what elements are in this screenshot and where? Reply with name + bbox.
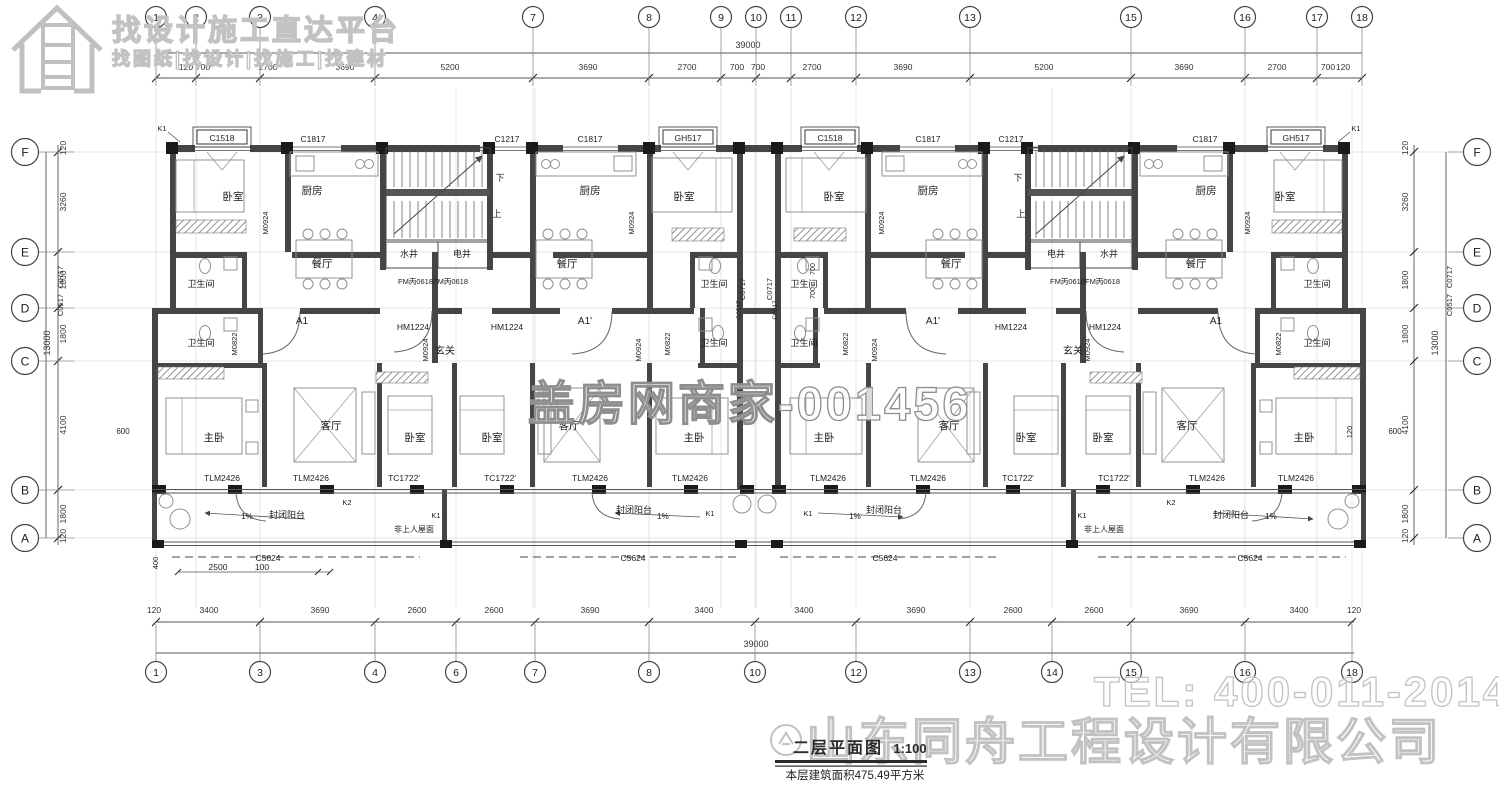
dim-label: 3260 (58, 192, 68, 211)
furniture (362, 392, 375, 454)
fixture-circle (959, 160, 968, 169)
tag-label: 600 (1388, 427, 1402, 436)
tag-label: TLM2426 (293, 473, 329, 483)
chair (560, 229, 570, 239)
dim-label: 120 (58, 529, 68, 543)
door-swing-arc (898, 493, 926, 519)
wall (1138, 252, 1226, 258)
wall (380, 145, 386, 270)
toilet (798, 259, 809, 274)
grid-bubble-bottom-14-label: 14 (1046, 667, 1058, 679)
dim-label: 2700 (1268, 62, 1287, 72)
room-label: 卫生间 (187, 278, 214, 289)
grid-bubble-right-F-label: F (1473, 146, 1480, 160)
wall (242, 252, 247, 308)
title-underline-thin (775, 766, 927, 767)
dim-label: 120 (1347, 605, 1361, 615)
room-label: 卫生间 (700, 337, 727, 348)
room-label: 餐厅 (557, 257, 578, 270)
furniture (246, 442, 258, 454)
grid-bubble-top-18-label: 18 (1356, 12, 1368, 24)
title-underline-thick (775, 760, 927, 763)
furniture (1204, 156, 1222, 171)
fixture-circle (159, 494, 173, 508)
grid-bubble-right-B-label: B (1473, 484, 1481, 498)
room-label: 非上人屋面 (394, 524, 434, 534)
tag-label-vertical: M0924 (1243, 212, 1252, 235)
wall (1061, 363, 1066, 487)
watermark-banner-line1: 找设计施工直达平台 (112, 13, 400, 47)
fixture-circle (365, 160, 374, 169)
window-opening (900, 145, 955, 153)
curtain-mark (1280, 152, 1310, 170)
tag-label: C1817 (915, 134, 940, 144)
wall (823, 252, 828, 308)
grid-bubble-left-F-label: F (21, 146, 28, 160)
dim-label: 1800 (1400, 324, 1410, 343)
tag-label: 1% (241, 512, 253, 521)
wall (1132, 145, 1138, 270)
dim-label: 120 (1400, 529, 1410, 543)
room-label: 主卧 (1294, 431, 1316, 444)
fixture-circle (551, 160, 560, 169)
tag-label-vertical: 700 (810, 287, 817, 299)
wall (698, 363, 740, 368)
pier (166, 142, 178, 154)
tag-label: K2 (342, 498, 351, 507)
tag-label: C5624 (620, 553, 645, 563)
dim-label: 1800 (58, 324, 68, 343)
dim-label: 3690 (311, 605, 330, 615)
grid-bubble-bottom-4-label: 4 (372, 667, 378, 679)
chair (303, 279, 313, 289)
floor-plan-drawing: 1207002700369052003690270070070027003690… (0, 0, 1499, 788)
tag-label: 1% (1265, 512, 1277, 521)
room-label: 非上人屋面 (1084, 524, 1124, 534)
room-label: 玄关 (1063, 344, 1083, 357)
tag-label-vertical: 120 (1345, 426, 1354, 439)
pier (1338, 142, 1350, 154)
tag-label: C1518 (817, 133, 842, 143)
tag-label: C5624 (1237, 553, 1262, 563)
toilet (200, 259, 211, 274)
room-label: 卫生间 (187, 337, 214, 348)
tag-label: 600 (116, 427, 130, 436)
dim-label: 2700 (678, 62, 697, 72)
tag-label-vertical: M0924 (877, 212, 886, 235)
curtain-mark (814, 152, 844, 170)
wall (612, 308, 694, 314)
tag-label: 1% (657, 512, 669, 521)
room-label: 上 (492, 209, 501, 219)
wall (300, 308, 380, 314)
title-block: 二层平面图 1:100 本层建筑面积475.49平方米 (775, 739, 927, 782)
room-label: 玄关 (435, 344, 455, 357)
tag-label: HM1224 (995, 322, 1027, 332)
tag-label: HM1224 (1089, 322, 1121, 332)
room-label: 水井 (1100, 248, 1118, 259)
tag-label: TC1722' (484, 473, 516, 483)
dim-label: 3690 (1175, 62, 1194, 72)
pier (440, 540, 452, 548)
room-label: 封闭阳台 (1213, 509, 1249, 520)
wall (1271, 252, 1276, 308)
dim-label: 120 (58, 141, 68, 155)
dim-label: 3400 (200, 605, 219, 615)
dim-label: 1800 (58, 504, 68, 523)
wall (258, 308, 263, 363)
grid-bubble-right-D-label: D (1473, 302, 1482, 316)
wall (985, 252, 1031, 258)
chair (543, 229, 553, 239)
room-label: 卧室 (1016, 431, 1037, 444)
fixture-circle (733, 495, 751, 513)
tag-label-vertical: M0924 (627, 212, 636, 235)
dim-label: 2700 (803, 62, 822, 72)
tag-label: C1518 (209, 133, 234, 143)
window-opening (195, 145, 250, 153)
wall (442, 490, 447, 542)
furniture (1260, 442, 1272, 454)
dim-label: 5200 (441, 62, 460, 72)
wall (1138, 308, 1218, 314)
pier (771, 540, 783, 548)
dim-label: 2600 (1085, 605, 1104, 615)
fixtures-layer (158, 132, 1360, 575)
furniture (1276, 398, 1352, 454)
tag-label-vertical: C0717 (738, 278, 747, 300)
grid-bubble-right-C-label: C (1473, 355, 1482, 369)
dim-label: 3690 (894, 62, 913, 72)
tag-label: TLM2426 (1278, 473, 1314, 483)
room-label: 餐厅 (1186, 257, 1207, 270)
dim-label: 3690 (1180, 605, 1199, 615)
room-label: 上 (1016, 209, 1025, 219)
room-label: 卧室 (674, 190, 695, 203)
chair (337, 279, 347, 289)
dim-label: 700 (1321, 62, 1335, 72)
chair (967, 229, 977, 239)
chair (933, 229, 943, 239)
room-label: A1' (926, 316, 940, 327)
fixture-circle (1328, 509, 1348, 529)
wall (813, 308, 818, 363)
dim-label: 5200 (1035, 62, 1054, 72)
tag-label: 1% (849, 512, 861, 521)
tag-label-vertical: M0924 (870, 339, 879, 362)
room-label: 卧室 (405, 431, 426, 444)
window-opening (1268, 145, 1323, 153)
tag-label: GH517 (675, 133, 702, 143)
room-label: 主卧 (204, 431, 225, 444)
room-label: A1 (1210, 316, 1223, 327)
window-opening (802, 145, 857, 153)
room-label: 主卧 (814, 431, 835, 444)
grid-bubble-bottom-6-label: 6 (453, 667, 459, 679)
watermark-banner-line2: 找图纸|找设计|找施工|找建材 (112, 48, 388, 69)
room-label: 封闭阳台 (269, 509, 305, 520)
room-label: 卫生间 (1303, 278, 1330, 289)
tag-label: K1 (705, 509, 714, 518)
fixture-circle (1154, 160, 1163, 169)
tag-label: GH517 (1283, 133, 1310, 143)
chair (1207, 229, 1217, 239)
hatch-strip (672, 228, 724, 241)
room-label: 封闭阳台 (616, 504, 652, 515)
chair (1173, 279, 1183, 289)
room-label: 电井 (453, 248, 471, 259)
fixture-circle (170, 509, 190, 529)
dim-label: 1800 (1400, 504, 1410, 523)
chair (950, 279, 960, 289)
dim-label: 3400 (695, 605, 714, 615)
tag-label: TLM2426 (810, 473, 846, 483)
grid-bubble-bottom-3-label: 3 (257, 667, 263, 679)
wall (775, 145, 781, 308)
grid-bubble-top-7-label: 7 (530, 12, 536, 24)
window-opening (563, 145, 618, 153)
door-swing-arc (262, 311, 300, 354)
tag-label: C1817 (1192, 134, 1217, 144)
tag-label-vertical: C0517 (1445, 294, 1454, 316)
room-label: A1' (578, 316, 592, 327)
chair (320, 229, 330, 239)
room-label: 卧室 (1275, 190, 1296, 203)
dim-label: 4100 (58, 415, 68, 434)
curtain-mark (673, 152, 703, 170)
tag-label: TC1722' (1098, 473, 1130, 483)
fixture-circle (968, 160, 977, 169)
chair (577, 229, 587, 239)
tag-label: TLM2426 (204, 473, 240, 483)
tag-label: TC1722' (388, 473, 420, 483)
pier (152, 540, 164, 548)
window-opening (286, 145, 341, 153)
grid-bubble-top-10-label: 10 (750, 12, 762, 24)
tag-label-vertical: M0924 (421, 339, 430, 362)
tag-label: 100 (255, 562, 269, 572)
room-label: 厨房 (302, 184, 323, 197)
tag-label: K1 (431, 511, 440, 520)
pier (1066, 540, 1078, 548)
dim-label: 2600 (408, 605, 427, 615)
tag-label-vertical: M0822 (1274, 333, 1283, 356)
dim-label: 1800 (1400, 270, 1410, 289)
furniture (1281, 257, 1294, 270)
room-label: 水井 (400, 248, 418, 259)
room-label: 餐厅 (312, 257, 333, 270)
dim-label: 120 (1336, 62, 1350, 72)
furniture (1281, 318, 1294, 331)
tag-label: C1817 (300, 134, 325, 144)
wall (958, 308, 1026, 314)
tag-label-vertical: C0717 (1445, 266, 1454, 288)
tag-label: TLM2426 (572, 473, 608, 483)
wall (487, 252, 533, 258)
pier (861, 142, 873, 154)
hatch-strip (794, 228, 846, 241)
grid-bubble-top-8-label: 8 (646, 12, 652, 24)
furniture (1014, 396, 1058, 454)
tag-label-vertical: C0717 (765, 278, 774, 300)
room-label: 下 (1013, 173, 1022, 183)
pier (771, 142, 783, 154)
grid-bubble-top-12-label: 12 (850, 12, 862, 24)
wall (690, 252, 695, 308)
wall (983, 363, 988, 487)
grid-bubble-top-11-label: 11 (786, 12, 797, 24)
dim-label: 120 (1400, 141, 1410, 155)
grid-bubble-left-E-label: E (21, 246, 29, 260)
hatch-strip (1090, 372, 1142, 383)
furniture (176, 160, 244, 212)
room-label: 卧室 (223, 190, 244, 203)
grid-bubble-bottom-10-label: 10 (749, 667, 761, 679)
chair (1207, 279, 1217, 289)
tag-label: HM1224 (397, 322, 429, 332)
wall (1255, 308, 1260, 363)
tag-label: K1 (803, 509, 812, 518)
pier (735, 540, 747, 548)
watermark-center: 盖房网商家-001456 (528, 377, 972, 430)
furniture (460, 396, 504, 454)
wall (492, 308, 560, 314)
tag-label-vertical: C0517 (736, 300, 743, 320)
dim-label: 3690 (581, 605, 600, 615)
furniture (886, 156, 904, 171)
wall (700, 308, 705, 363)
grid-bubble-bottom-12-label: 12 (850, 667, 862, 679)
room-label: 卧室 (482, 431, 503, 444)
tag-label: TLM2426 (672, 473, 708, 483)
grid-bubble-bottom-8-label: 8 (646, 667, 652, 679)
watermark-tel: TEL: 400-011-2014 (1094, 668, 1499, 715)
wall (824, 308, 906, 314)
room-label: 卧室 (1093, 431, 1114, 444)
company-logo-icon-glyph (779, 733, 793, 744)
room-label: 卧室 (824, 190, 845, 203)
furniture (1086, 396, 1130, 454)
room-label: 下 (495, 173, 504, 183)
chair (320, 279, 330, 289)
tag-label: K2 (1166, 498, 1175, 507)
furniture (652, 158, 732, 212)
wall (152, 490, 157, 545)
tag-label: FM丙0618FM丙0618 (398, 277, 468, 286)
tag-label: TC1722' (1002, 473, 1034, 483)
pier (733, 142, 745, 154)
tag-label: K1 (157, 124, 166, 133)
dim-label: 3400 (1290, 605, 1309, 615)
grid-bubble-bottom-13-label: 13 (964, 667, 976, 679)
pier (1354, 540, 1366, 548)
tag-label-vertical: C0517 (772, 300, 779, 320)
tag-label: FM丙0618FM丙0618 (1050, 277, 1120, 286)
dim-label: 3400 (795, 605, 814, 615)
dim-label: 3260 (1400, 192, 1410, 211)
door-swing-arc (1218, 311, 1256, 354)
floor-area-note: 本层建筑面积475.49平方米 (786, 768, 925, 782)
room-label: 客厅 (321, 419, 342, 432)
wall (262, 363, 267, 487)
furniture (1260, 400, 1272, 412)
tag-label-vertical: M0924 (261, 212, 270, 235)
dim-label: 3690 (579, 62, 598, 72)
tag-label-vertical: C0517 (56, 294, 65, 316)
room-label: 卫生间 (1303, 337, 1330, 348)
wall (982, 145, 988, 308)
wall (170, 145, 1350, 152)
grid-bubble-left-C-label: C (21, 355, 30, 369)
chair (560, 279, 570, 289)
room-label: A1 (296, 316, 309, 327)
room-label: 卫生间 (790, 337, 817, 348)
fixture-circle (1145, 160, 1154, 169)
room-label: 厨房 (1196, 184, 1217, 197)
chair (950, 229, 960, 239)
hatch-strip (1272, 220, 1342, 233)
furniture (166, 398, 242, 454)
grid-bubble-top-13-label: 13 (964, 12, 976, 24)
grid-bubble-left-B-label: B (21, 484, 29, 498)
window-opening (661, 145, 716, 153)
grid-bubble-bottom-7-label: 7 (532, 667, 538, 679)
room-label: 卫生间 (700, 278, 727, 289)
tag-label: C1817 (577, 134, 602, 144)
curtain-mark (207, 152, 237, 170)
grid-bubble-top-17-label: 17 (1311, 12, 1323, 24)
wall (170, 145, 176, 308)
drawing-title: 二层平面图 (793, 739, 883, 757)
k1-leader (168, 132, 180, 142)
wall (690, 252, 740, 258)
tag-label: TLM2426 (1189, 473, 1225, 483)
tag-label-vertical: C0717 (56, 266, 65, 288)
wall (530, 145, 536, 308)
wall (452, 363, 457, 487)
furniture (224, 257, 237, 270)
chair (303, 229, 313, 239)
total-width-label: 39000 (735, 40, 760, 50)
dim-label: 2600 (1004, 605, 1023, 615)
furniture (614, 156, 632, 171)
tag-label: C1217 (998, 134, 1023, 144)
room-label: 客厅 (1177, 419, 1198, 432)
wall (1361, 490, 1366, 545)
room-label: 厨房 (580, 184, 601, 197)
furniture (296, 156, 314, 171)
grid-bubble-right-E-label: E (1473, 246, 1481, 260)
chair (1190, 229, 1200, 239)
wall (1258, 308, 1363, 314)
dim-label: 2600 (485, 605, 504, 615)
grid-bubble-top-15-label: 15 (1125, 12, 1137, 24)
tag-label-vertical: M0924 (1083, 339, 1092, 362)
furniture (1143, 392, 1156, 454)
furniture (1274, 160, 1342, 212)
hatch-strip (1294, 367, 1360, 379)
tag-label-vertical: M0822 (230, 333, 239, 356)
furniture (246, 400, 258, 412)
chair (577, 279, 587, 289)
furniture (224, 318, 237, 331)
furniture (388, 396, 432, 454)
toilet (710, 259, 721, 274)
tag-label-vertical: 700 (810, 263, 817, 275)
chair (1190, 279, 1200, 289)
wall (292, 252, 380, 258)
grid-bubble-left-D-label: D (21, 302, 30, 316)
